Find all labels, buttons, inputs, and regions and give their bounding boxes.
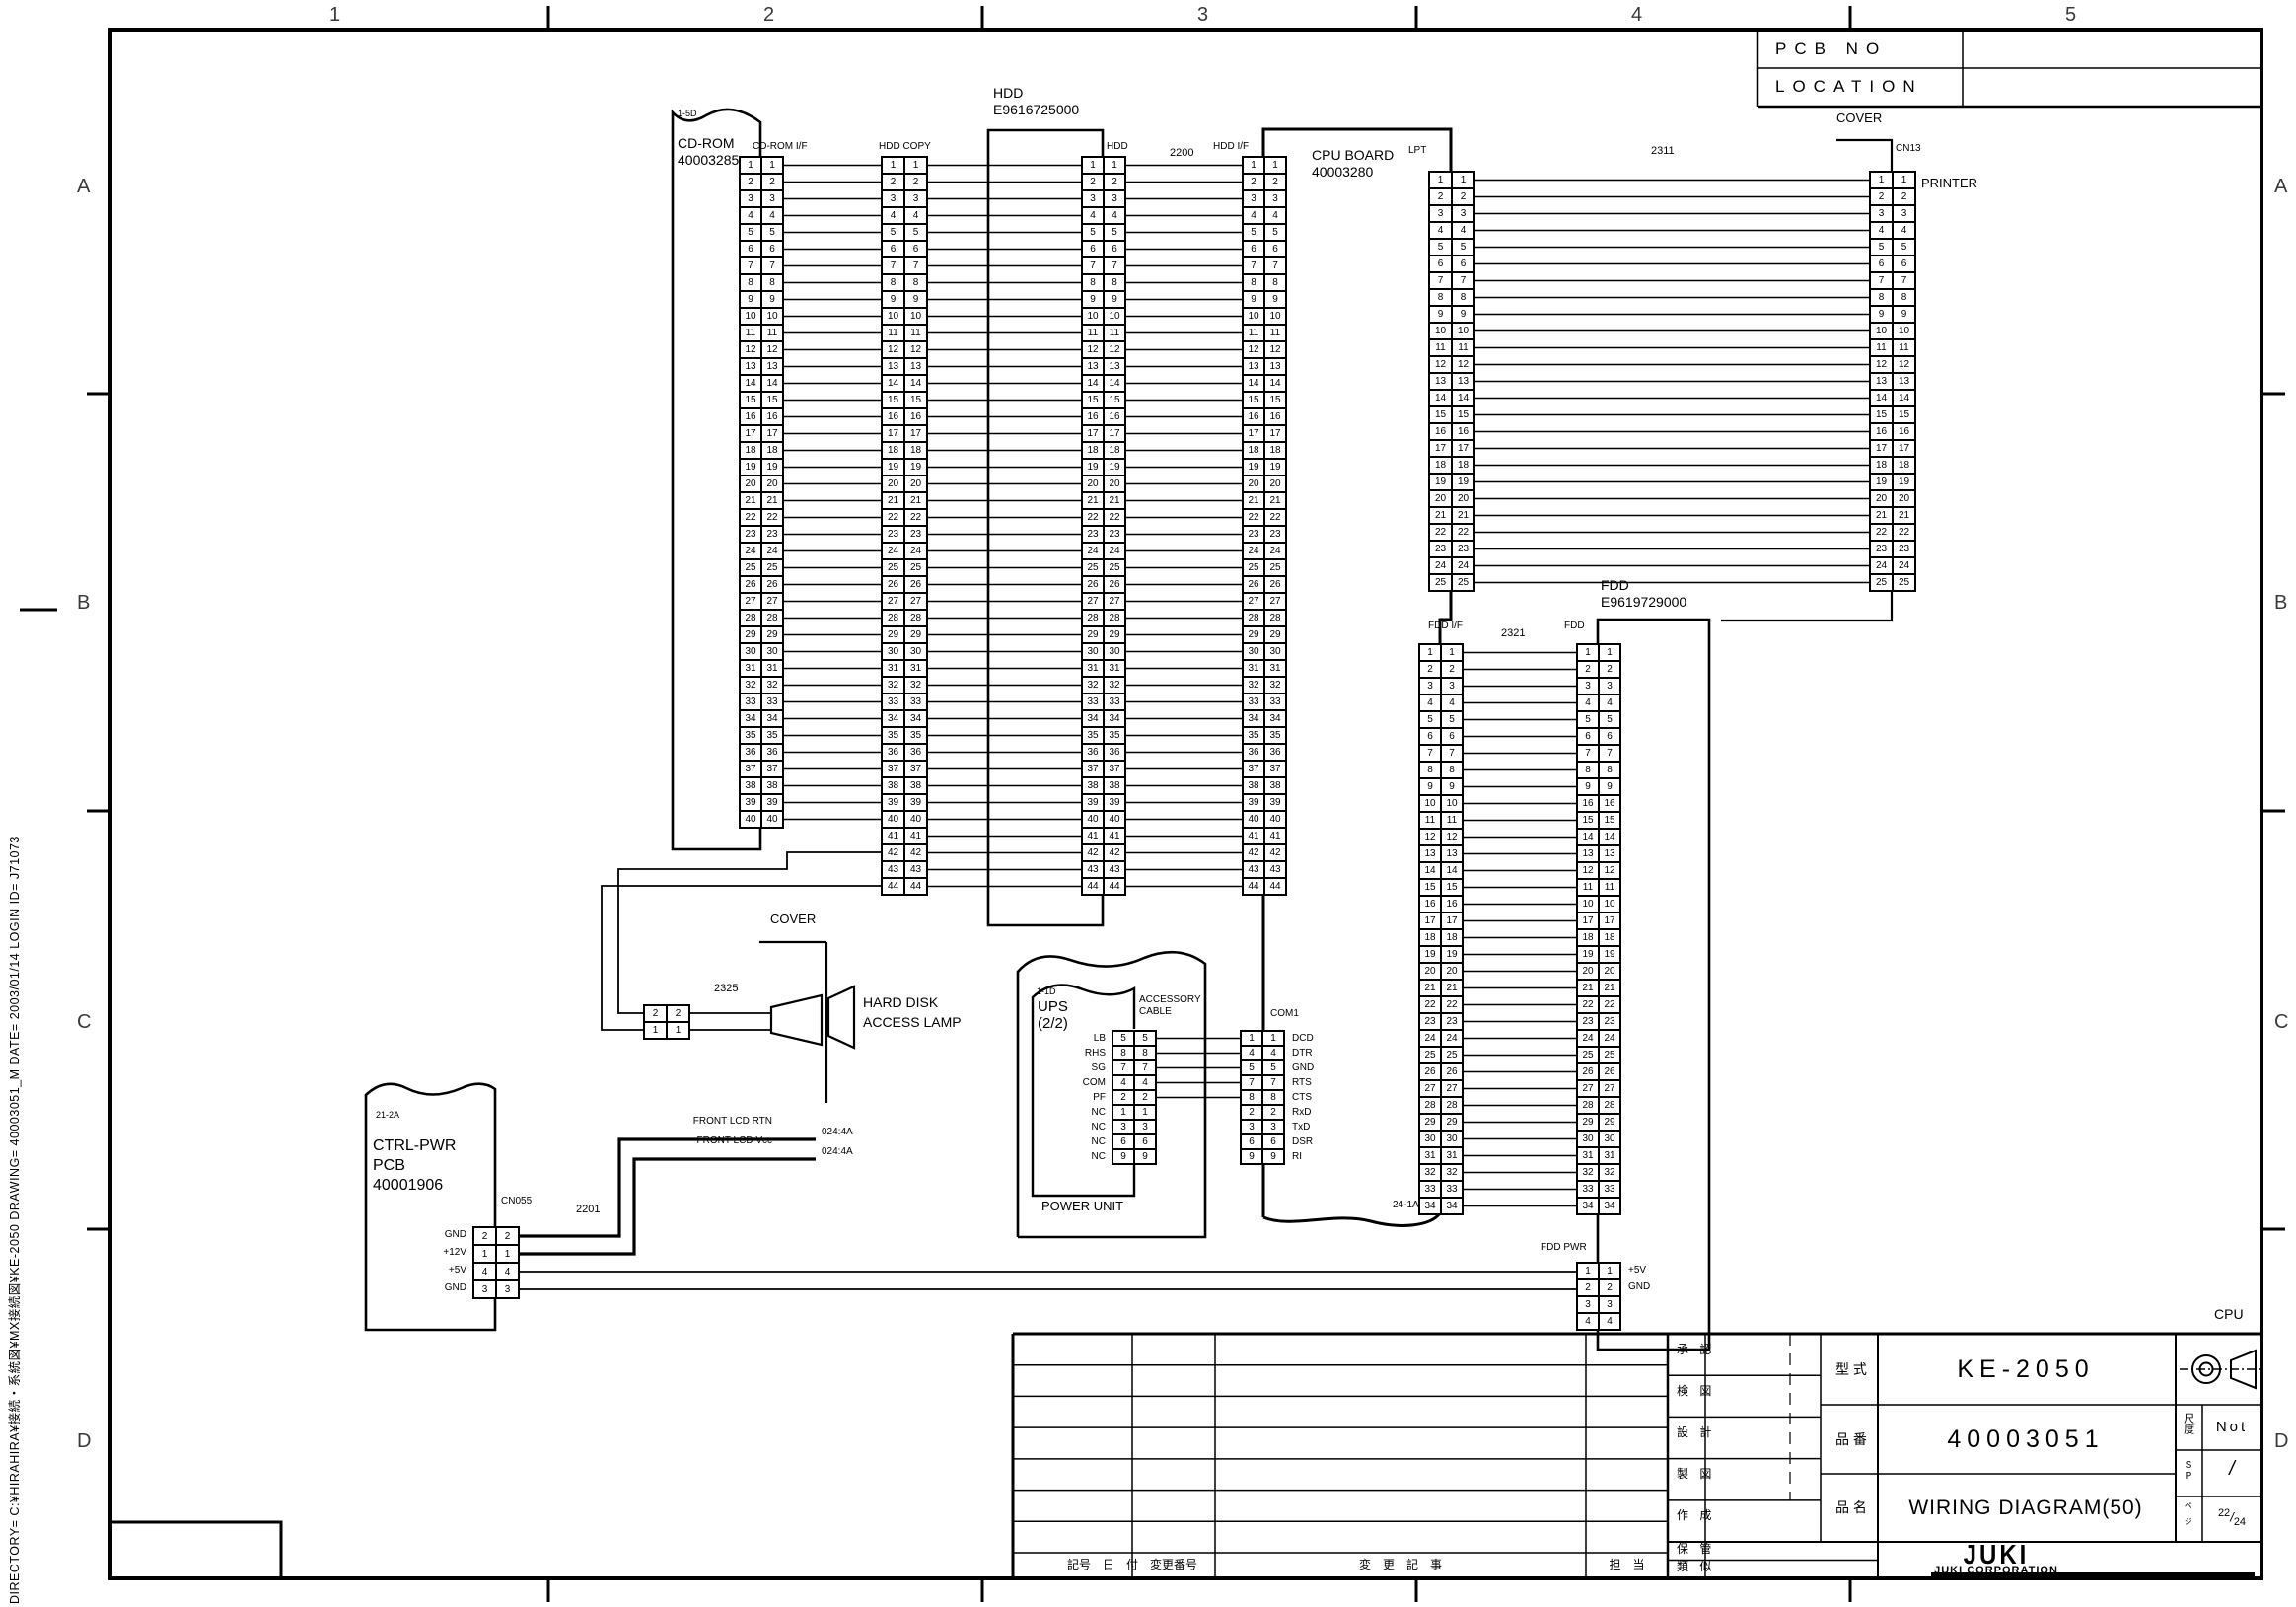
cable-2200-label: 2200	[1170, 147, 1193, 160]
pin-cell: 25	[1428, 573, 1453, 592]
accessory-cable-label1: ACCESSORY	[1139, 994, 1201, 1006]
model-value: KE-2050	[1878, 1355, 2174, 1384]
zone-column-label: 2	[763, 4, 774, 27]
location-label: LOCATION	[1775, 77, 1923, 97]
lamp-label2: ACCESS LAMP	[863, 1014, 962, 1030]
pin-signal-label: +5V	[1628, 1265, 1687, 1276]
pin-row: 2525	[1869, 573, 1916, 592]
zone-row-label: B	[77, 592, 90, 615]
pin-signal-label: RTS	[1292, 1077, 1351, 1088]
zone-row-label: A	[77, 176, 90, 198]
zone-column-label: 5	[2065, 4, 2076, 27]
plot-footer-note: DIRECTORY= C:¥HIRAHIRA¥接続・系統図¥MX接続図¥KE-2…	[4, 836, 23, 1604]
connector-lamp: 2211	[643, 1004, 690, 1040]
pin-row: 4444	[881, 877, 928, 896]
ups-name: UPS	[1038, 998, 1068, 1015]
pin-cell: 44	[1263, 877, 1287, 896]
hdd-conn-label: HDD	[1107, 141, 1128, 153]
connector-hdd-copy: 1122334455667788991010111112121313141415…	[881, 156, 928, 896]
connector-fdd-if: 1122334455667788991010111112121313141415…	[1418, 643, 1464, 1215]
connector-cn13: 1122334455667788991010111112121313141415…	[1869, 171, 1916, 592]
pin-cell: 25	[1451, 573, 1475, 592]
connector-cn055: 22GND11+12V44+5V33GND	[472, 1226, 520, 1299]
pin-cell: 44	[881, 877, 905, 896]
pin-signal-label: RxD	[1292, 1107, 1351, 1118]
approval-row-label: 製 図	[1677, 1468, 1715, 1482]
pin-cell: 4	[495, 1262, 520, 1281]
ups-zone-ref: 1-1D	[1037, 986, 1056, 996]
model-label: 型 式	[1825, 1361, 1878, 1377]
pin-signal-label: COM	[1046, 1077, 1106, 1088]
pin-row: 11	[472, 1244, 520, 1264]
pin-cell: 44	[1081, 877, 1105, 896]
printer-label: PRINTER	[1921, 177, 1977, 191]
sp-value: /	[2202, 1458, 2261, 1481]
pin-cell: 3	[472, 1279, 497, 1299]
cover-mid-label: COVER	[770, 913, 816, 927]
approval-row-label: 検 図	[1677, 1385, 1715, 1399]
pin-cell: 4	[1576, 1312, 1600, 1331]
rev-change-no-header: 変更番号	[1132, 1559, 1215, 1572]
zone-row-label: D	[2274, 1430, 2288, 1453]
cdrom-name: CD-ROM	[678, 135, 735, 151]
zone-row-label: C	[77, 1011, 91, 1034]
rev-mark-date-header: 記号 日 付	[1067, 1559, 1138, 1572]
pin-row: 44	[1576, 1312, 1621, 1331]
pin-signal-label: NC	[1046, 1122, 1106, 1132]
pin-cell: 9	[1133, 1148, 1157, 1165]
pin-signal-label: SG	[1046, 1062, 1106, 1073]
zone-column-label: 4	[1631, 4, 1642, 27]
dest-ref-rtn: 024:4A	[822, 1127, 853, 1138]
approval-row-label: 設 計	[1677, 1426, 1715, 1440]
pin-signal-label: DTR	[1292, 1048, 1351, 1059]
pin-signal-label: NC	[1046, 1107, 1106, 1118]
pin-cell: 4	[472, 1262, 497, 1281]
hdd-unit-name: HDD	[993, 85, 1023, 101]
pin-cell: 34	[1418, 1197, 1442, 1215]
zone-row-label: D	[77, 1430, 91, 1453]
ctrl-pwr-name2: PCB	[373, 1157, 405, 1175]
zone-column-label: 3	[1197, 4, 1208, 27]
pin-row: 2525	[1428, 573, 1475, 592]
pin-row: 3434	[1576, 1197, 1621, 1215]
pin-cell: 1	[643, 1021, 668, 1040]
cover-top-label: COVER	[1836, 111, 1882, 126]
approval-row-label: 作 成	[1677, 1509, 1715, 1523]
zone-row-label: B	[2274, 592, 2287, 615]
connector-ups-acc: 55LB88RHS77SG44COM22PF11NC33NC66NC99NC	[1112, 1030, 1157, 1165]
ctrl-pwr-name: CTRL-PWR	[373, 1137, 456, 1155]
approval-row-label: 保 管	[1677, 1543, 1715, 1557]
pin-signal-label: GND	[407, 1229, 466, 1240]
pin-row: 33	[472, 1279, 520, 1299]
fdd-pwr-label: FDD PWR	[1541, 1242, 1587, 1254]
fdd-conn-label: FDD	[1564, 621, 1585, 632]
rev-charge-header: 担 当	[1586, 1559, 1668, 1572]
pin-cell: 34	[1440, 1197, 1464, 1215]
pin-cell: 1	[472, 1244, 497, 1264]
cn13-label: CN13	[1896, 143, 1921, 155]
pin-signal-label: NC	[1046, 1151, 1106, 1162]
scale-label: 尺度	[2182, 1413, 2194, 1434]
part-value: 40003051	[1878, 1425, 2174, 1454]
pin-row: 4040	[739, 810, 784, 829]
sp-label: SP	[2183, 1460, 2194, 1482]
connector-hdd: 1122334455667788991010111112121313141415…	[1081, 156, 1126, 896]
pin-signal-label: DSR	[1292, 1136, 1351, 1147]
pin-row: 99	[1240, 1148, 1285, 1165]
pin-cell: 1	[495, 1244, 520, 1264]
fdd-unit-number: E9619729000	[1601, 594, 1686, 610]
pin-cell: 25	[1869, 573, 1894, 592]
ctrl-zone-ref: 21-2A	[376, 1110, 399, 1120]
pin-cell: 9	[1112, 1148, 1135, 1165]
ups-name2: (2/2)	[1038, 1015, 1068, 1032]
pin-row: 4444	[1242, 877, 1287, 896]
pin-cell: 44	[1242, 877, 1265, 896]
cdrom-number: 40003285	[678, 152, 739, 168]
pin-cell: 40	[760, 810, 784, 829]
pin-row: 44	[472, 1262, 520, 1281]
hdd-copy-label: HDD COPY	[879, 141, 931, 153]
pin-signal-label: PF	[1046, 1092, 1106, 1103]
cn055-label: CN055	[501, 1196, 532, 1207]
connector-cdrom-if: 1122334455667788991010111112121313141415…	[739, 156, 784, 829]
pin-signal-label: LB	[1046, 1033, 1106, 1044]
fdd-if-label: FDD I/F	[1428, 621, 1463, 632]
pin-cell: 40	[739, 810, 762, 829]
pin-cell: 44	[1103, 877, 1126, 896]
front-lcd-rtn-label: FRONT LCD RTN	[639, 1116, 772, 1128]
page-value: 22/24	[2202, 1507, 2261, 1529]
power-unit-label: POWER UNIT	[1041, 1200, 1123, 1214]
connector-lpt: 1122334455667788991010111112121313141415…	[1428, 171, 1475, 592]
pin-signal-label: GND	[407, 1282, 466, 1293]
approval-row-label: 承 認	[1677, 1344, 1715, 1357]
name-label: 品 名	[1825, 1499, 1878, 1515]
dest-ref-vcc: 024:4A	[822, 1146, 853, 1158]
pin-cell: 9	[1240, 1148, 1263, 1165]
rev-change-desc-header: 変 更 記 事	[1215, 1559, 1586, 1572]
pin-signal-label: +5V	[407, 1265, 466, 1276]
zone-column-label: 1	[329, 4, 340, 27]
pin-signal-label: CTS	[1292, 1092, 1351, 1103]
cable-2201-label: 2201	[576, 1204, 600, 1216]
pin-row: 22	[472, 1226, 520, 1246]
pin-signal-label: NC	[1046, 1136, 1106, 1147]
pin-signal-label: RHS	[1046, 1048, 1106, 1059]
pin-cell: 4	[1598, 1312, 1621, 1331]
page-label: ページ	[2184, 1501, 2192, 1525]
pin-row: 4444	[1081, 877, 1126, 896]
pin-signal-label: TxD	[1292, 1122, 1351, 1132]
pin-signal-label: DCD	[1292, 1033, 1351, 1044]
lpt-label: LPT	[1408, 145, 1426, 157]
pin-cell: 34	[1576, 1197, 1600, 1215]
ctrl-pwr-number: 40001906	[373, 1177, 443, 1195]
pin-cell: 34	[1598, 1197, 1621, 1215]
cpu-note-label: CPU	[2214, 1306, 2244, 1322]
pin-cell: 25	[1892, 573, 1916, 592]
pin-cell: 3	[495, 1279, 520, 1299]
pin-signal-label: +12V	[407, 1247, 466, 1258]
pin-cell: 2	[472, 1226, 497, 1246]
pin-row: 99	[1112, 1148, 1157, 1165]
cdrom-if-label: CD-ROM I/F	[753, 141, 808, 153]
hdd-if-label: HDD I/F	[1213, 141, 1249, 153]
part-label: 品 番	[1825, 1431, 1878, 1447]
com1-label: COM1	[1270, 1008, 1299, 1020]
cable-2325-label: 2325	[714, 983, 738, 995]
connector-fdd-pwr: 11+5V22GND3344	[1576, 1262, 1621, 1331]
pin-signal-label: GND	[1292, 1062, 1351, 1073]
fdd-unit-name: FDD	[1601, 577, 1629, 593]
approval-row-label: 類 似	[1677, 1561, 1715, 1574]
cpu-board-number: 40003280	[1312, 164, 1373, 180]
cpu-board-name: CPU BOARD	[1312, 147, 1394, 163]
scale-value: Not	[2202, 1419, 2261, 1435]
cable-2321-label: 2321	[1501, 627, 1525, 640]
connector-hdd-if: 1122334455667788991010111112121313141415…	[1242, 156, 1287, 896]
pin-signal-label: GND	[1628, 1281, 1687, 1292]
pin-cell: 1	[666, 1021, 690, 1040]
cdrom-zone-ref: 1-5D	[678, 109, 697, 118]
front-lcd-vcc-label: FRONT LCD Vcc	[639, 1135, 772, 1147]
zone-row-label: C	[2274, 1011, 2288, 1034]
juki-logo-bar	[1931, 1572, 2255, 1578]
connector-com1: 11DCD44DTR55GND77RTS88CTS22RxD33TxD66DSR…	[1240, 1030, 1285, 1165]
cable-2311-label: 2311	[1651, 145, 1675, 158]
pin-row: 11	[643, 1021, 690, 1040]
zone-row-label: A	[2274, 176, 2287, 198]
pcb-no-label: PCB NO	[1775, 39, 1887, 59]
zone-ref-24-1a: 24-1A	[1393, 1200, 1419, 1211]
connector-fdd: 1122334455667788991616151514141313121211…	[1576, 643, 1621, 1215]
pin-row: 3434	[1418, 1197, 1464, 1215]
pin-signal-label: RI	[1292, 1151, 1351, 1162]
wiring-diagram-sheet: PCB NO LOCATION COVER CN13 PRINTER 2311 …	[0, 0, 2296, 1607]
pin-cell: 2	[495, 1226, 520, 1246]
name-value: WIRING DIAGRAM(50)	[1878, 1497, 2174, 1520]
hdd-unit-number: E9616725000	[993, 102, 1079, 117]
lamp-label1: HARD DISK	[863, 994, 938, 1010]
pin-cell: 9	[1261, 1148, 1285, 1165]
pin-cell: 44	[903, 877, 928, 896]
accessory-cable-label2: CABLE	[1139, 1006, 1172, 1018]
